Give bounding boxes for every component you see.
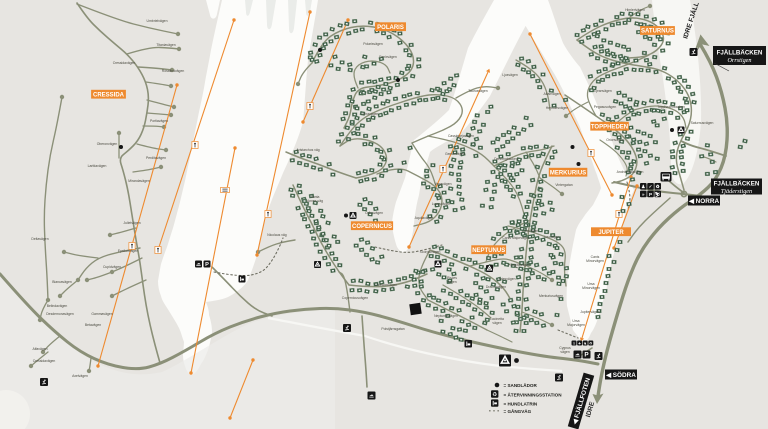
svg-text:Ljusvägen: Ljusvägen xyxy=(502,73,518,77)
svg-text:Herkulesvägen: Herkulesvägen xyxy=(546,106,569,110)
svg-text:Lohavägen: Lohavägen xyxy=(522,229,539,233)
svg-text:Leovägen: Leovägen xyxy=(545,235,560,239)
svg-text:Orionvägen: Orionvägen xyxy=(606,138,624,142)
svg-text:MERKURIUS: MERKURIUS xyxy=(550,170,586,176)
svg-text:Coletiomvägen: Coletiomvägen xyxy=(375,283,398,287)
svg-text:»: » xyxy=(642,192,645,197)
svg-text:= HUNDLATRIN: = HUNDLATRIN xyxy=(504,402,538,407)
svg-text:Geminivägen: Geminivägen xyxy=(445,152,465,156)
svg-text:Desdemonavägen: Desdemonavägen xyxy=(46,312,74,316)
svg-text:Julietvägen: Julietvägen xyxy=(123,221,140,225)
svg-text:Nicolaus väg: Nicolaus väg xyxy=(267,233,287,237)
svg-text:Vintergatan: Vintergatan xyxy=(555,183,572,187)
svg-text:Lyranvägen: Lyranvägen xyxy=(594,89,612,93)
svg-text:Fenixvägen: Fenixvägen xyxy=(379,55,397,59)
svg-text:Cressidavägen: Cressidavägen xyxy=(33,359,56,363)
svg-text:POLARIS: POLARIS xyxy=(377,25,404,31)
svg-text:FJÄLLBÄCKEN: FJÄLLBÄCKEN xyxy=(717,49,763,56)
svg-text:Taurusvägen: Taurusvägen xyxy=(468,89,488,93)
svg-text:= ÅTERVINNINGSSTATION: = ÅTERVINNINGSSTATION xyxy=(504,391,563,397)
svg-text:COPERNICUS: COPERNICUS xyxy=(352,224,392,230)
svg-text:Aquilavägen: Aquilavägen xyxy=(415,216,434,220)
svg-text:Cupidvägen: Cupidvägen xyxy=(103,265,121,269)
svg-text:Tjäderstigen: Tjäderstigen xyxy=(721,188,752,195)
svg-text:Himlerivägen: Himlerivägen xyxy=(625,8,645,12)
svg-text:Portiavägen: Portiavägen xyxy=(150,119,168,123)
svg-text:Sagittavägen: Sagittavägen xyxy=(510,263,530,267)
svg-text:⛷: ⛷ xyxy=(655,191,661,198)
svg-text:JUPITER: JUPITER xyxy=(598,230,624,236)
svg-text:Polstjärnsgatan: Polstjärnsgatan xyxy=(381,327,404,331)
svg-text:Draconvägen: Draconvägen xyxy=(486,285,506,289)
svg-text:Scorpiovägen: Scorpiovägen xyxy=(420,250,441,254)
svg-text:Alfavägen: Alfavägen xyxy=(32,347,47,351)
svg-text:Deltavägen: Deltavägen xyxy=(31,237,48,241)
svg-text:Altairvägen: Altairvägen xyxy=(544,92,561,96)
svg-text:◀ SÖDRA: ◀ SÖDRA xyxy=(605,370,636,379)
svg-text:Pegasusvägen: Pegasusvägen xyxy=(594,105,617,109)
svg-text:✓: ✓ xyxy=(649,184,653,189)
svg-text:Cressidavägen: Cressidavägen xyxy=(113,61,136,65)
svg-text:Larfdavägen: Larfdavägen xyxy=(88,164,107,168)
svg-text:Axelvägen: Axelvägen xyxy=(72,374,88,378)
svg-text:Belindavägen: Belindavägen xyxy=(47,304,68,308)
svg-text:♻: ♻ xyxy=(492,391,497,398)
svg-text:Neptunusvägen: Neptunusvägen xyxy=(434,314,458,318)
svg-text:Lupusvägen: Lupusvägen xyxy=(432,202,451,206)
svg-text:Polarisvägen: Polarisvägen xyxy=(363,42,383,46)
svg-text:Biancavägen: Biancavägen xyxy=(52,280,72,284)
svg-text:Ariesvägen: Ariesvägen xyxy=(499,277,516,281)
svg-text:Odinsvägen: Odinsvägen xyxy=(365,211,383,215)
svg-text:Betavägen: Betavägen xyxy=(85,323,101,327)
svg-text:P: P xyxy=(584,352,589,359)
svg-text:Cygnusvägen: Cygnusvägen xyxy=(559,346,571,354)
svg-text:♞: ♞ xyxy=(584,342,587,346)
svg-text:Libravägen: Libravägen xyxy=(362,112,379,116)
svg-text:Cassiopejavägen: Cassiopejavägen xyxy=(448,134,474,138)
svg-text:= SANDLÅDOR: = SANDLÅDOR xyxy=(504,382,538,388)
svg-text:♟: ♟ xyxy=(641,184,645,189)
svg-text:Oberonvägen: Oberonvägen xyxy=(97,142,118,146)
svg-text:Canis Majorvägen: Canis Majorvägen xyxy=(502,236,529,240)
svg-text:Saturnusvägen: Saturnusvägen xyxy=(691,121,714,125)
svg-text:Gammavägen: Gammavägen xyxy=(91,312,112,316)
svg-text:P: P xyxy=(205,262,209,268)
svg-text:Titaniavägen: Titaniavägen xyxy=(156,43,175,47)
svg-text:Vegavägen: Vegavägen xyxy=(435,182,452,186)
svg-text:◀ NORRA: ◀ NORRA xyxy=(688,198,720,205)
svg-text:FJÄLLBÄCKEN: FJÄLLBÄCKEN xyxy=(714,180,760,187)
svg-text:Mirandavägen: Mirandavägen xyxy=(128,179,150,183)
svg-text:Piscesvägen: Piscesvägen xyxy=(447,276,457,284)
svg-text:P: P xyxy=(649,192,652,197)
svg-text:Umbrielvägen: Umbrielvägen xyxy=(147,19,168,23)
svg-text:CRESSIDA: CRESSIDA xyxy=(93,92,125,98)
svg-text:Orrstigen: Orrstigen xyxy=(727,57,751,64)
svg-text:Perditavägen: Perditavägen xyxy=(146,156,166,160)
svg-text:SATURNUS: SATURNUS xyxy=(641,29,674,35)
svg-text:Rosalindvägen: Rosalindvägen xyxy=(162,69,185,73)
svg-text:= GÅNGVÄG: = GÅNGVÄG xyxy=(504,408,532,414)
svg-text:Topphedenbacken: Topphedenbacken xyxy=(657,105,685,109)
svg-text:Merkuriusvägen: Merkuriusvägen xyxy=(539,294,563,298)
svg-text:Jupitervägen: Jupitervägen xyxy=(580,310,600,314)
svg-text:TOPPHEDEN: TOPPHEDEN xyxy=(591,124,628,130)
svg-text:Denningbacken: Denningbacken xyxy=(494,157,518,161)
svg-text:Aristarchos väg: Aristarchos väg xyxy=(296,148,319,152)
svg-text:Andromedavägen: Andromedavägen xyxy=(617,170,644,174)
svg-text:Copernicusvägen: Copernicusvägen xyxy=(342,296,369,300)
svg-text:NEPTUNUS: NEPTUNUS xyxy=(472,248,505,254)
svg-text:Epsilonvägen: Epsilonvägen xyxy=(118,249,138,253)
